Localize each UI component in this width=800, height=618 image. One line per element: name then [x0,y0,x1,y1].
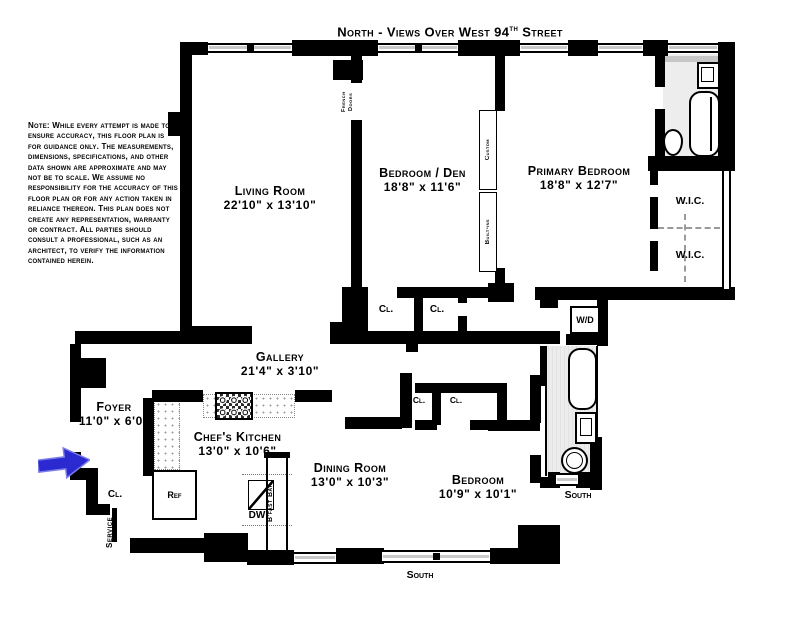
bathtub [568,348,597,410]
wall [488,283,514,302]
room-dims: 18'8" x 11'6" [350,180,495,194]
room-label-bedroom-den: Bedroom / Den 18'8" x 11'6" [350,166,495,195]
built-ins-label: Built-ins [485,219,491,244]
room-dims: 13'0" x 10'3" [288,475,412,489]
wic-label: W.I.C. [664,196,716,208]
wall [406,344,418,352]
custom-label: Custom [485,139,491,160]
french-doors-line1: French [341,92,347,113]
room-dims: 21'4" x 3'10" [205,364,355,378]
wall [397,287,495,298]
french-doors-label: FrenchDoors [341,82,355,122]
room-dims: 11'0" x 6'0" [64,414,164,428]
washer-dryer-label: W/D [576,315,594,325]
wall [650,197,658,229]
stove [215,392,253,420]
room-name: Bedroom [418,473,538,487]
room-name: Primary Bedroom [505,164,653,178]
sink-basin [701,67,714,82]
plan-title-suffix: Street [518,24,563,39]
refrigerator-label: Ref [167,490,181,500]
wall [458,287,467,303]
window [520,43,568,53]
wall [650,241,658,271]
wall [342,287,368,337]
wall [488,420,540,431]
plan-title: North - Views Over West 94th Street [320,24,580,39]
disclaimer-note: Note: While every attempt is made to ens… [28,121,180,267]
closet-divider-line [658,227,720,229]
wall [168,112,192,136]
window [668,43,718,53]
wall [540,477,554,488]
closet-label: Cl. [372,304,400,315]
plan-title-superscript: th [509,24,518,33]
wall [722,171,731,289]
wall [247,550,294,565]
closet-rod-line [684,214,686,282]
wall [718,53,735,159]
wall [458,316,467,333]
entrance-arrow-icon [38,444,90,482]
breakfast-bar-label: B'fast Bar [267,458,287,548]
wall [204,533,248,562]
wall [351,120,362,292]
room-dims: 22'10" x 13'10" [195,198,345,212]
custom-built-ins-cabinet: Built-ins [479,192,497,272]
bathtub [689,91,720,157]
wic-label: W.I.C. [664,250,716,262]
room-label-living-room: Living Room 22'10" x 13'10" [195,184,345,213]
window [294,552,336,564]
room-name: Living Room [195,184,345,198]
wall [414,287,423,335]
wall [336,548,384,564]
room-name: Dining Room [288,461,412,475]
wall [540,346,547,386]
wall [415,420,437,430]
wall [655,53,665,87]
plan-title-text: North - Views Over West 94 [337,24,509,39]
refrigerator: Ref [152,470,197,520]
wall-line [545,384,547,476]
room-dims: 13'0" x 10'6" [160,444,315,458]
window [598,43,643,53]
wall [180,326,252,344]
closet-label: Cl. [443,396,469,405]
wall [535,287,735,300]
wall [518,525,560,550]
room-label-bedroom: Bedroom 10'9" x 10'1" [418,473,538,502]
wall [292,40,378,56]
window [382,550,490,563]
room-dims: 10'9" x 10'1" [418,487,538,501]
wall [70,358,106,388]
wall [130,538,204,553]
wall [495,53,505,111]
wall [75,331,183,344]
wall [415,383,500,393]
south-label: South [552,490,604,502]
window [556,473,578,486]
closet-label: Cl. [100,489,130,500]
washer-dryer: W/D [570,306,600,334]
room-name: Gallery [205,350,355,364]
room-name: Foyer [64,400,164,414]
south-label: South [390,570,450,582]
wall [576,472,594,488]
closet-label: Cl. [423,304,451,315]
bathtub-rim-line [710,97,712,151]
room-dims: 18'8" x 12'7" [505,178,653,192]
room-label-foyer: Foyer 11'0" x 6'0" [64,400,164,429]
wall [180,53,192,337]
floor-plan: North - Views Over West 94th Street Note… [0,0,800,618]
room-label-gallery: Gallery 21'4" x 3'10" [205,350,355,379]
wall [345,417,402,429]
room-name: Chef's Kitchen [160,430,315,444]
room-label-dining-room: Dining Room 13'0" x 10'3" [288,461,412,490]
room-label-chefs-kitchen: Chef's Kitchen 13'0" x 10'6" [160,430,315,459]
service-label: Service [105,504,114,560]
wall [566,334,598,345]
wall [490,548,560,564]
window [378,43,458,53]
wall [351,53,362,83]
sink-basin [580,418,592,436]
wall [530,375,541,423]
french-doors-line2: Doors [348,93,354,111]
window [208,43,292,53]
closet-label: Cl. [406,396,432,405]
wall [470,420,488,430]
room-name: Bedroom / Den [350,166,495,180]
toilet-seat [566,452,583,469]
room-label-primary-bedroom: Primary Bedroom 18'8" x 12'7" [505,164,653,193]
wall [295,390,332,402]
wall [458,40,520,56]
wall [568,40,598,56]
wall [540,290,558,308]
